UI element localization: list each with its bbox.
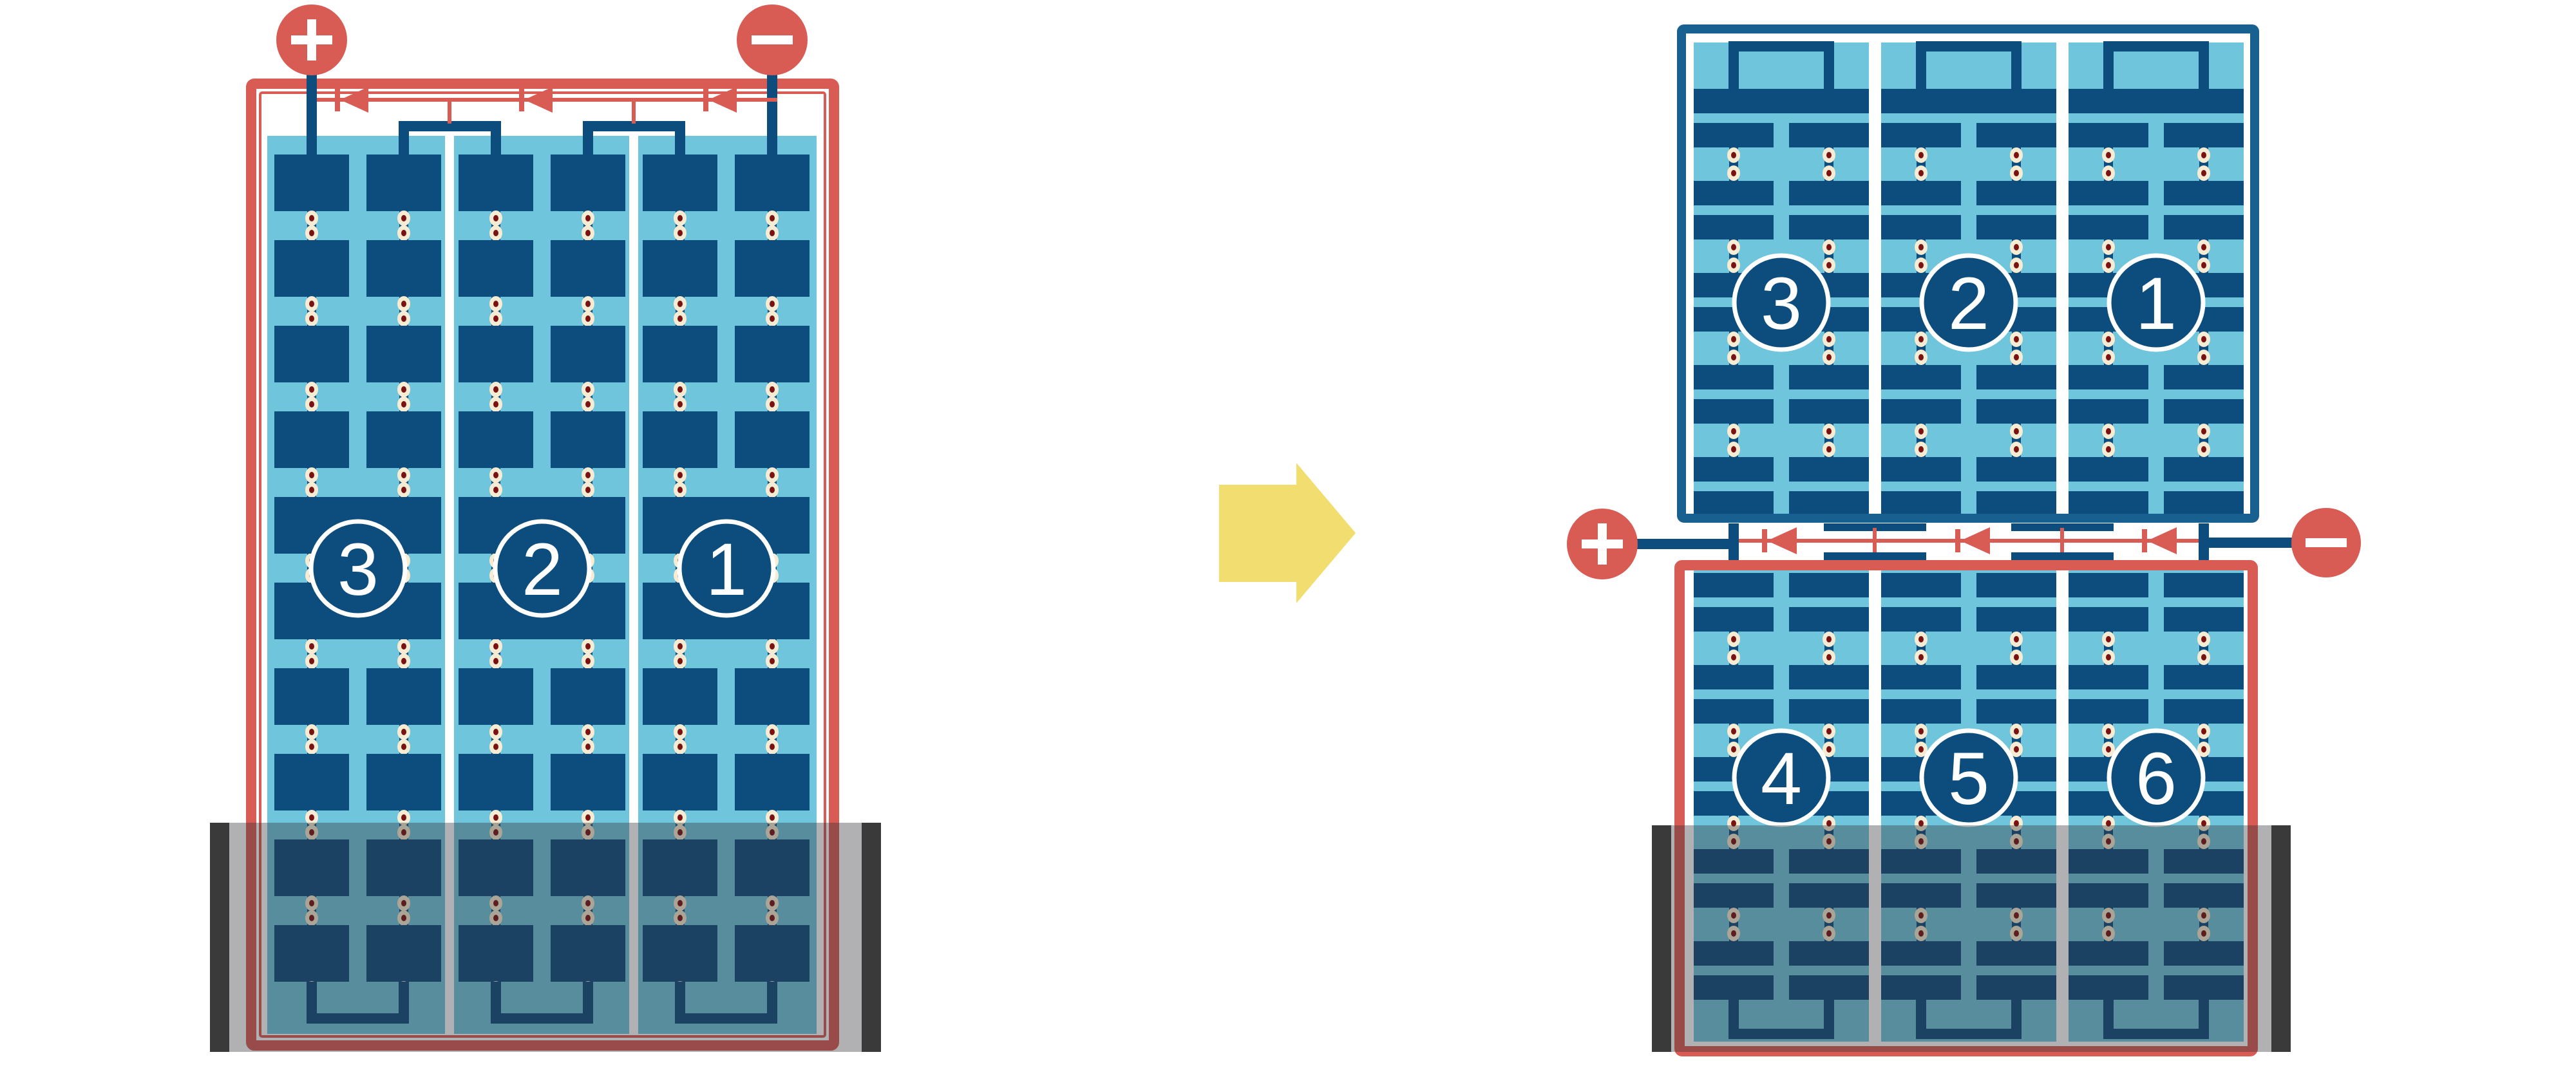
right-top-string-labels: 3 2 1: [1734, 256, 2203, 350]
transform-arrow-icon: [1219, 463, 1356, 603]
right-top-string-gap: [2056, 42, 2069, 514]
left-negative-terminal: [737, 5, 808, 75]
junction-positive-terminal: [1567, 509, 1638, 579]
string-label-text: 6: [2136, 738, 2177, 820]
right-assembly: 3 2 1: [1567, 29, 2361, 1052]
diode-icon: [519, 87, 553, 113]
string-label-text: 1: [2136, 263, 2177, 345]
diode-tap-tick: [1873, 528, 1877, 552]
string-label-text: 3: [337, 529, 379, 611]
diode-icon: [2142, 527, 2177, 554]
right-bottom-module: 4 5 6: [1652, 565, 2291, 1052]
left-string-labels: 3 2 1: [311, 521, 773, 615]
diode-tap-stub: [448, 102, 451, 124]
water-edge-bar: [2271, 825, 2291, 1052]
diode-icon: [1955, 527, 1990, 554]
left-positive-terminal: [276, 5, 347, 75]
water-edge-bar: [862, 823, 881, 1052]
diode-icon: [1762, 527, 1797, 554]
string-label-text: 2: [522, 529, 563, 611]
junction-negative-lead-wire: [2204, 538, 2294, 548]
right-flood-water: [1652, 825, 2291, 1052]
left-flood-water: [210, 823, 881, 1052]
diode-tap-stub: [632, 102, 636, 124]
right-top-string-gap: [1869, 42, 1881, 514]
left-negative-lead-wire: [767, 71, 777, 155]
string-label-text: 3: [1761, 263, 1802, 345]
diode-icon: [335, 87, 368, 113]
flood-overlay: [210, 823, 881, 1052]
water-edge-bar: [1652, 825, 1671, 1052]
string-label-text: 5: [1948, 738, 1989, 820]
junction-bypass-diode-line: [1739, 527, 2199, 554]
right-top-module: 3 2 1: [1681, 29, 2255, 518]
minus-icon: [2306, 538, 2347, 547]
diode-tap-tick: [2060, 528, 2064, 552]
junction-negative-terminal: [2291, 508, 2361, 577]
junction-positive-lead-wire: [1636, 539, 1734, 549]
flood-overlay: [1652, 825, 2291, 1052]
string-label-text: 4: [1761, 738, 1802, 820]
left-module: 3 2 1: [210, 5, 881, 1052]
string-label-text: 2: [1948, 263, 1989, 345]
diagram-canvas: 3 2 1: [0, 0, 2576, 1068]
left-positive-lead-wire: [307, 71, 317, 155]
right-bottom-string-labels: 4 5 6: [1734, 731, 2203, 825]
water-edge-bar: [210, 823, 229, 1052]
minus-icon: [752, 35, 793, 44]
string-label-text: 1: [706, 529, 747, 611]
diode-icon: [703, 87, 737, 113]
